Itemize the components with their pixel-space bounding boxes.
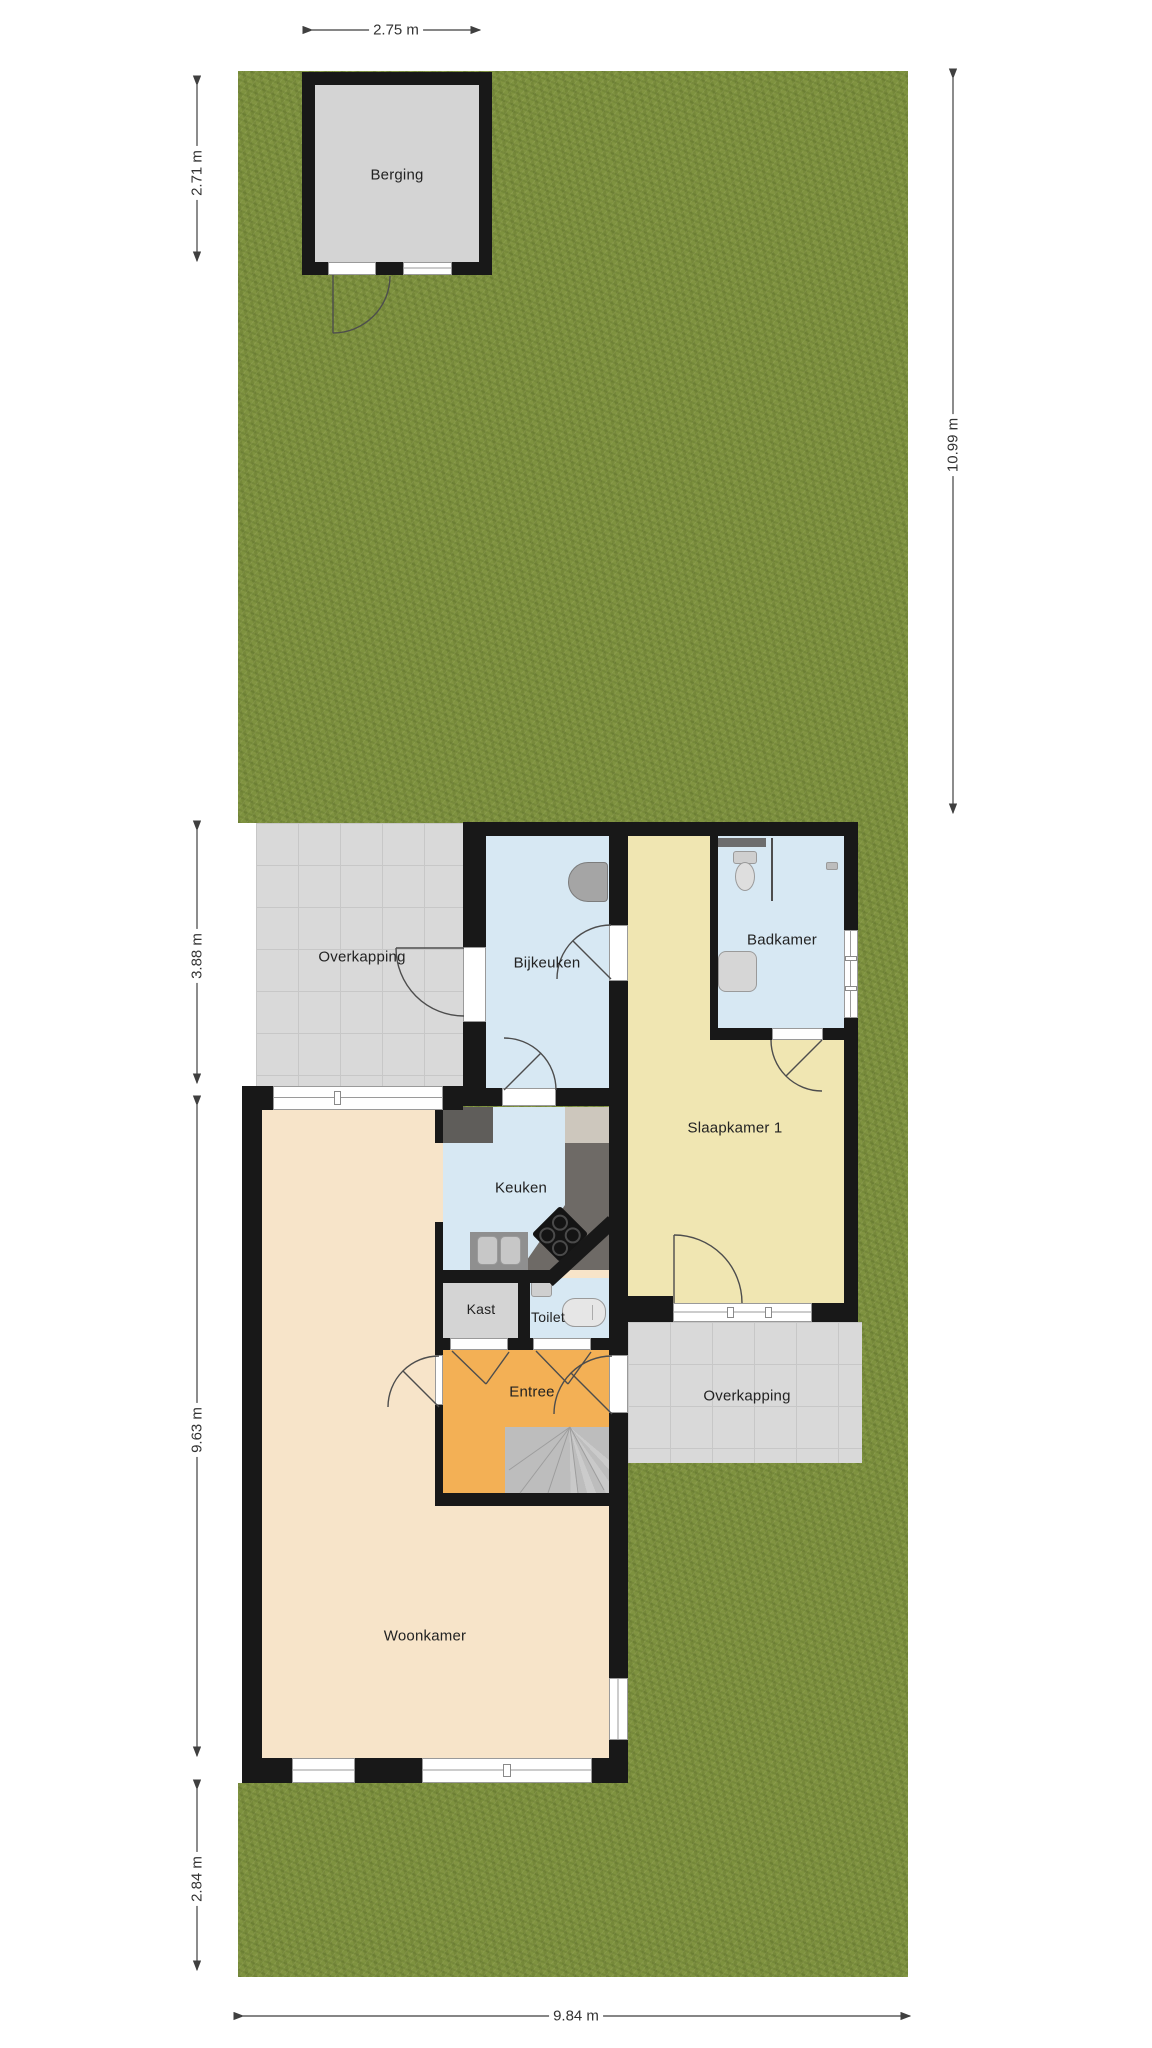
stairs-lines	[509, 1427, 604, 1493]
room-label-woonkamer: Woonkamer	[384, 1628, 466, 1645]
plan-annotations-svg	[0, 0, 1152, 2048]
dimension-shed-depth: 2.71 m	[189, 146, 206, 200]
room-label-bijkeuken: Bijkeuken	[514, 955, 581, 972]
room-label-slaapkamer1: Slaapkamer 1	[688, 1120, 783, 1137]
room-label-entree: Entree	[509, 1384, 554, 1401]
room-label-berging: Berging	[370, 167, 423, 184]
room-label-keuken: Keuken	[495, 1180, 547, 1197]
dimension-overkapping-depth: 3.88 m	[189, 929, 206, 983]
dimension-garden-front-depth: 2.84 m	[189, 1852, 206, 1906]
room-label-kast: Kast	[467, 1301, 496, 1317]
dimension-plot-width: 9.84 m	[549, 2008, 603, 2025]
dimension-house-depth: 9.63 m	[189, 1403, 206, 1457]
door-arcs	[333, 275, 822, 1414]
floor-plan-canvas: Berging Overkapping Bijkeuken Badkamer S…	[0, 0, 1152, 2048]
room-label-badkamer: Badkamer	[747, 932, 817, 949]
dimension-arrows	[197, 30, 953, 2016]
room-label-overkapping-right: Overkapping	[703, 1388, 790, 1405]
dimension-shed-width: 2.75 m	[369, 22, 423, 39]
dimension-garden-depth: 10.99 m	[945, 414, 962, 476]
room-label-toilet: Toilet	[531, 1309, 565, 1325]
room-label-overkapping-left: Overkapping	[318, 949, 405, 966]
